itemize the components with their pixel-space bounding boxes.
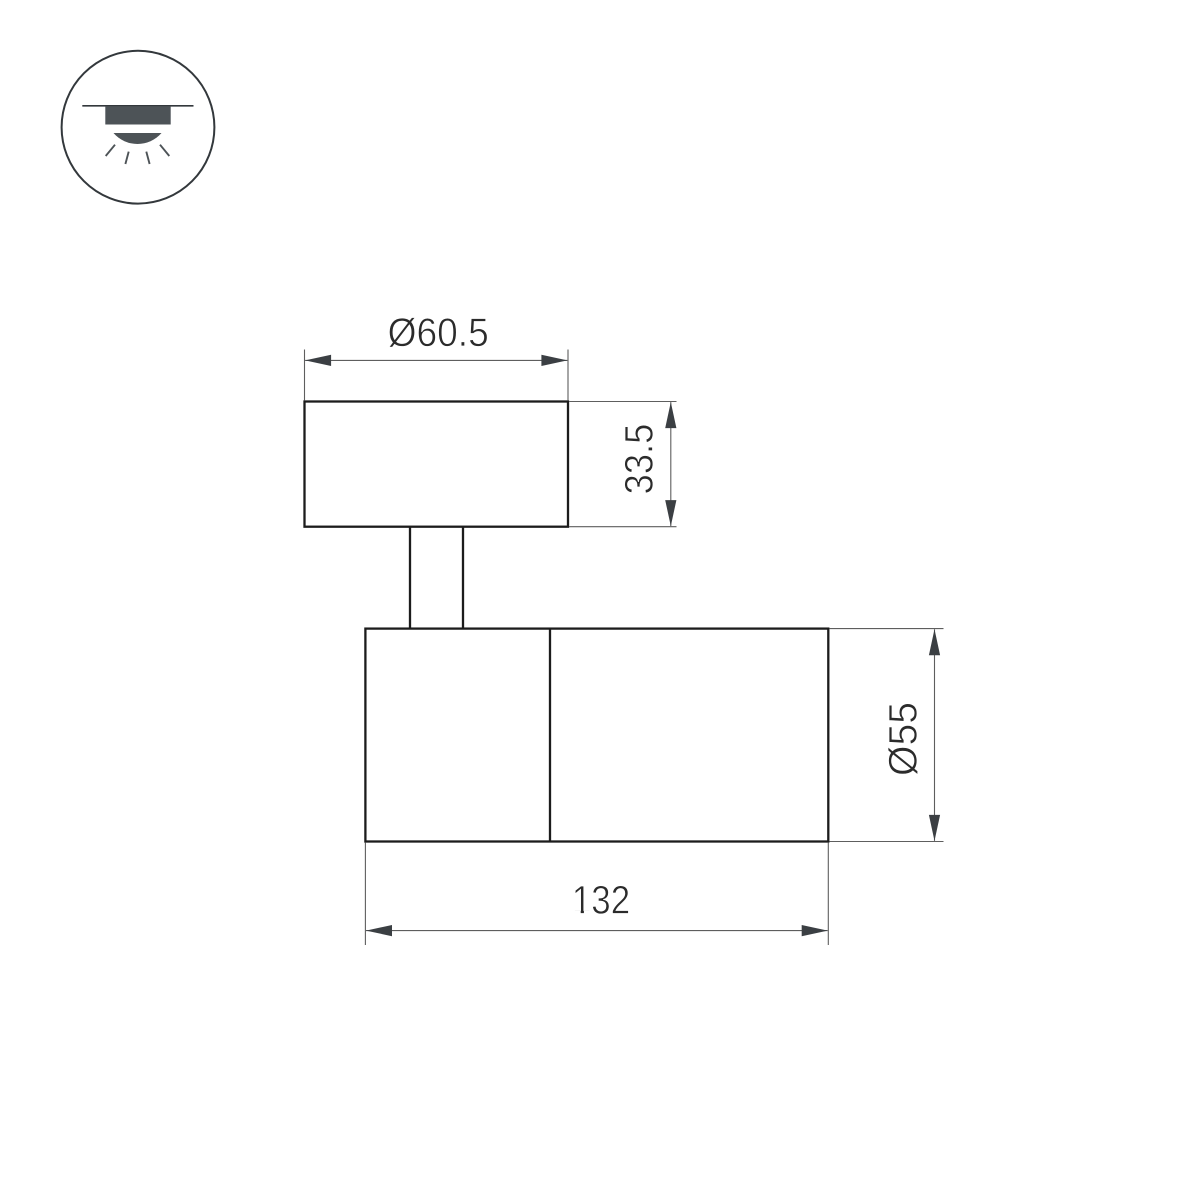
svg-text:Ø55: Ø55 bbox=[881, 702, 925, 776]
svg-text:33.5: 33.5 bbox=[618, 424, 662, 495]
svg-text:Ø60.5: Ø60.5 bbox=[388, 311, 489, 355]
